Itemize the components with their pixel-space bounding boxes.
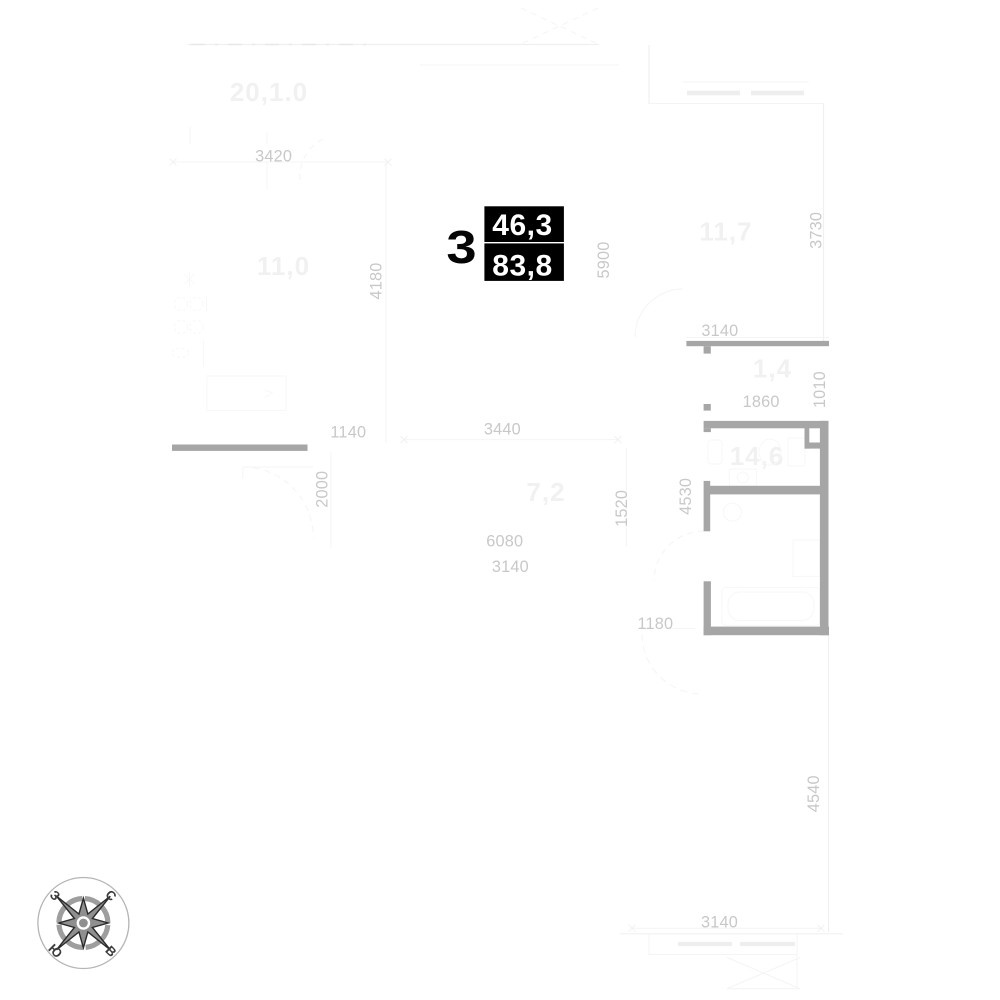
svg-text:1180: 1180	[637, 615, 673, 633]
svg-text:3420: 3420	[255, 147, 292, 165]
svg-text:11,7: 11,7	[699, 217, 752, 247]
svg-text:3140: 3140	[492, 558, 529, 576]
svg-text:20,1.0: 20,1.0	[230, 77, 308, 107]
svg-text:11,0: 11,0	[257, 251, 310, 281]
svg-text:5900: 5900	[595, 241, 613, 278]
svg-text:1520: 1520	[613, 490, 631, 527]
svg-text:4530: 4530	[677, 478, 695, 515]
svg-text:14,6: 14,6	[730, 441, 785, 471]
svg-text:1,4: 1,4	[753, 354, 792, 384]
svg-text:46,3: 46,3	[492, 209, 552, 242]
svg-text:1010: 1010	[811, 371, 829, 408]
svg-text:3: 3	[446, 221, 476, 273]
svg-text:3440: 3440	[484, 420, 521, 438]
svg-text:7,2: 7,2	[526, 477, 565, 507]
svg-text:83,8: 83,8	[492, 250, 552, 283]
svg-text:1140: 1140	[330, 424, 366, 442]
svg-text:1860: 1860	[743, 393, 780, 411]
svg-text:4180: 4180	[367, 262, 385, 299]
svg-text:2000: 2000	[313, 471, 331, 508]
svg-text:6080: 6080	[486, 532, 523, 550]
svg-text:3140: 3140	[701, 913, 738, 931]
svg-text:3730: 3730	[808, 212, 826, 249]
svg-text:4540: 4540	[805, 775, 823, 812]
svg-text:3140: 3140	[701, 322, 738, 340]
